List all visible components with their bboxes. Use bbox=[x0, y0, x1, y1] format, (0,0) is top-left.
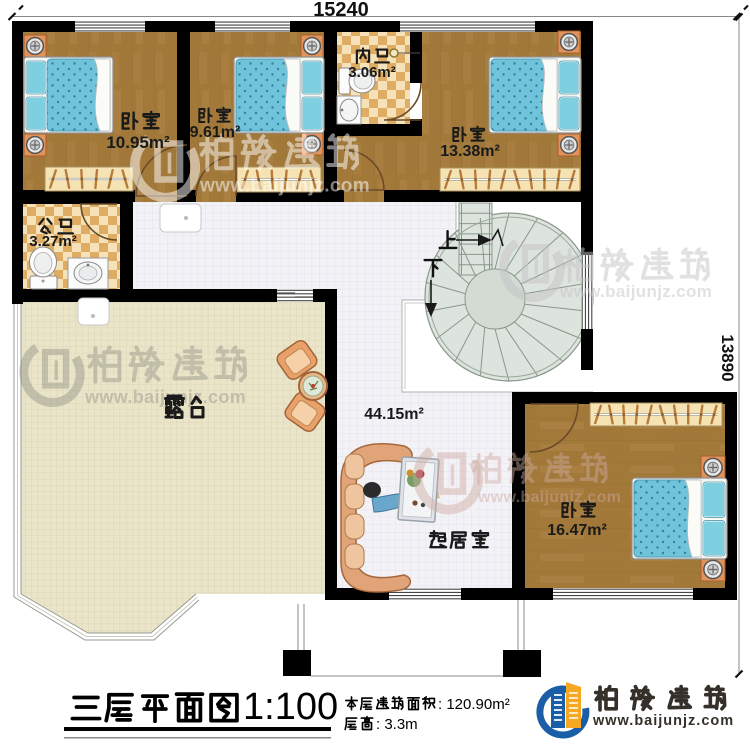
svg-text:10.95m²: 10.95m² bbox=[106, 133, 170, 152]
svg-text:3.27m²: 3.27m² bbox=[29, 233, 77, 250]
svg-text:9.61m²: 9.61m² bbox=[190, 124, 241, 141]
svg-text:16.47m²: 16.47m² bbox=[547, 522, 607, 539]
svg-text:www.baijunjz.com: www.baijunjz.com bbox=[199, 176, 370, 197]
svg-text:: 3.3m: : 3.3m bbox=[376, 716, 418, 733]
svg-text:44.15m²: 44.15m² bbox=[364, 406, 424, 423]
svg-text:13890: 13890 bbox=[718, 334, 737, 381]
svg-text:www.baijunjz.com: www.baijunjz.com bbox=[592, 713, 734, 729]
svg-text:: 120.90m²: : 120.90m² bbox=[438, 696, 510, 713]
svg-text:www.baijunjz.com: www.baijunjz.com bbox=[477, 489, 621, 506]
svg-text:13.38m²: 13.38m² bbox=[440, 143, 500, 160]
svg-text:1:100: 1:100 bbox=[243, 686, 338, 728]
svg-text:15240: 15240 bbox=[313, 0, 369, 21]
svg-text:3.06m²: 3.06m² bbox=[348, 64, 396, 81]
svg-text:www.baijunjz.com: www.baijunjz.com bbox=[559, 282, 712, 301]
